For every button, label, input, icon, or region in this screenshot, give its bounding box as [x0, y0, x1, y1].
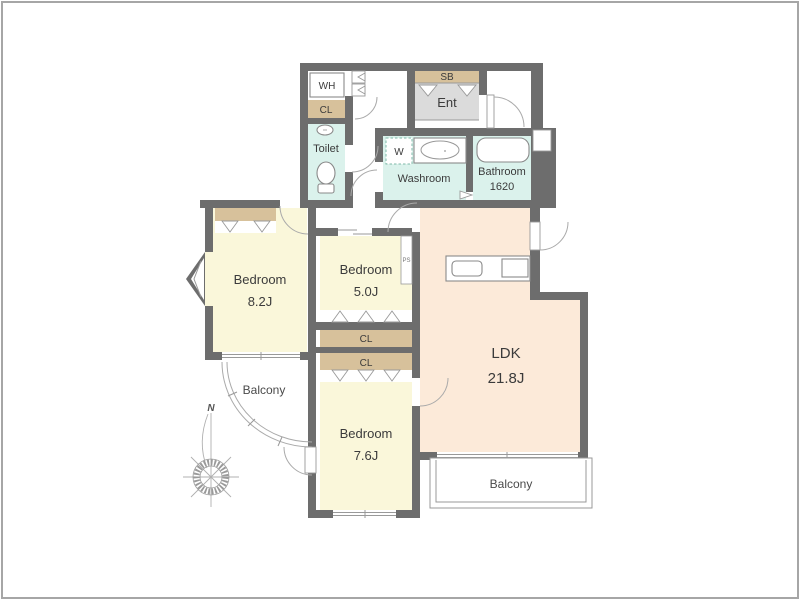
- window-bedroom-76: [333, 510, 396, 518]
- label-bedroom-82-size: 8.2J: [248, 294, 273, 309]
- closet-bedroom-82: [215, 208, 276, 221]
- label-bedroom-76: Bedroom: [340, 426, 393, 441]
- wh-folding-door: [352, 71, 377, 119]
- compass-north-icon: N: [183, 403, 239, 507]
- washroom-door-swing: [351, 170, 377, 196]
- label-bedroom-82: Bedroom: [234, 272, 287, 287]
- entrance-door: [487, 95, 524, 128]
- bedroom-50-sliding-door: [338, 230, 372, 234]
- room-ldk: [420, 208, 530, 452]
- label-washer: W: [394, 147, 404, 158]
- compass-north-label: N: [207, 403, 215, 414]
- label-ldk: LDK: [491, 345, 520, 362]
- kitchen-counter: [446, 256, 530, 281]
- label-entrance: Ent: [437, 95, 457, 110]
- toilet-door-swing: [352, 146, 378, 172]
- label-balcony-west: Balcony: [243, 383, 286, 397]
- label-cl-hall: CL: [320, 105, 333, 116]
- balcony-west-outline: [222, 362, 312, 447]
- label-balcony-south: Balcony: [490, 477, 533, 491]
- bathtub-icon: [477, 138, 529, 162]
- floor-plan: N WH CL Toilet SB Ent W Washroom Bathroo…: [0, 0, 800, 600]
- label-washroom: Washroom: [398, 173, 451, 185]
- room-bedroom-76: [320, 382, 412, 510]
- label-bathroom: Bathroom: [478, 166, 526, 178]
- meter-box: [533, 130, 551, 151]
- label-sb: SB: [440, 72, 454, 83]
- label-toilet: Toilet: [313, 143, 339, 155]
- label-pipe-space: PS: [402, 258, 410, 264]
- label-ldk-size: 21.8J: [488, 370, 525, 387]
- label-bathroom-size: 1620: [490, 181, 514, 193]
- door-swing: [355, 97, 377, 119]
- toilet-icon: [317, 162, 335, 193]
- label-bedroom-76-size: 7.6J: [354, 448, 379, 463]
- label-cl1: CL: [360, 334, 373, 345]
- label-bedroom-50: Bedroom: [340, 262, 393, 277]
- label-wh: WH: [319, 81, 336, 92]
- toilet-sink-icon: [317, 125, 333, 135]
- ldk-service-door: [530, 222, 568, 250]
- washroom-sink-icon: [414, 138, 466, 163]
- window-bedroom-82: [222, 352, 300, 360]
- label-cl2: CL: [360, 358, 373, 369]
- label-bedroom-50-size: 5.0J: [354, 284, 379, 299]
- floor-plan-drawing: N WH CL Toilet SB Ent W Washroom Bathroo…: [0, 0, 800, 600]
- bedroom-76-balcony-door: [284, 447, 316, 475]
